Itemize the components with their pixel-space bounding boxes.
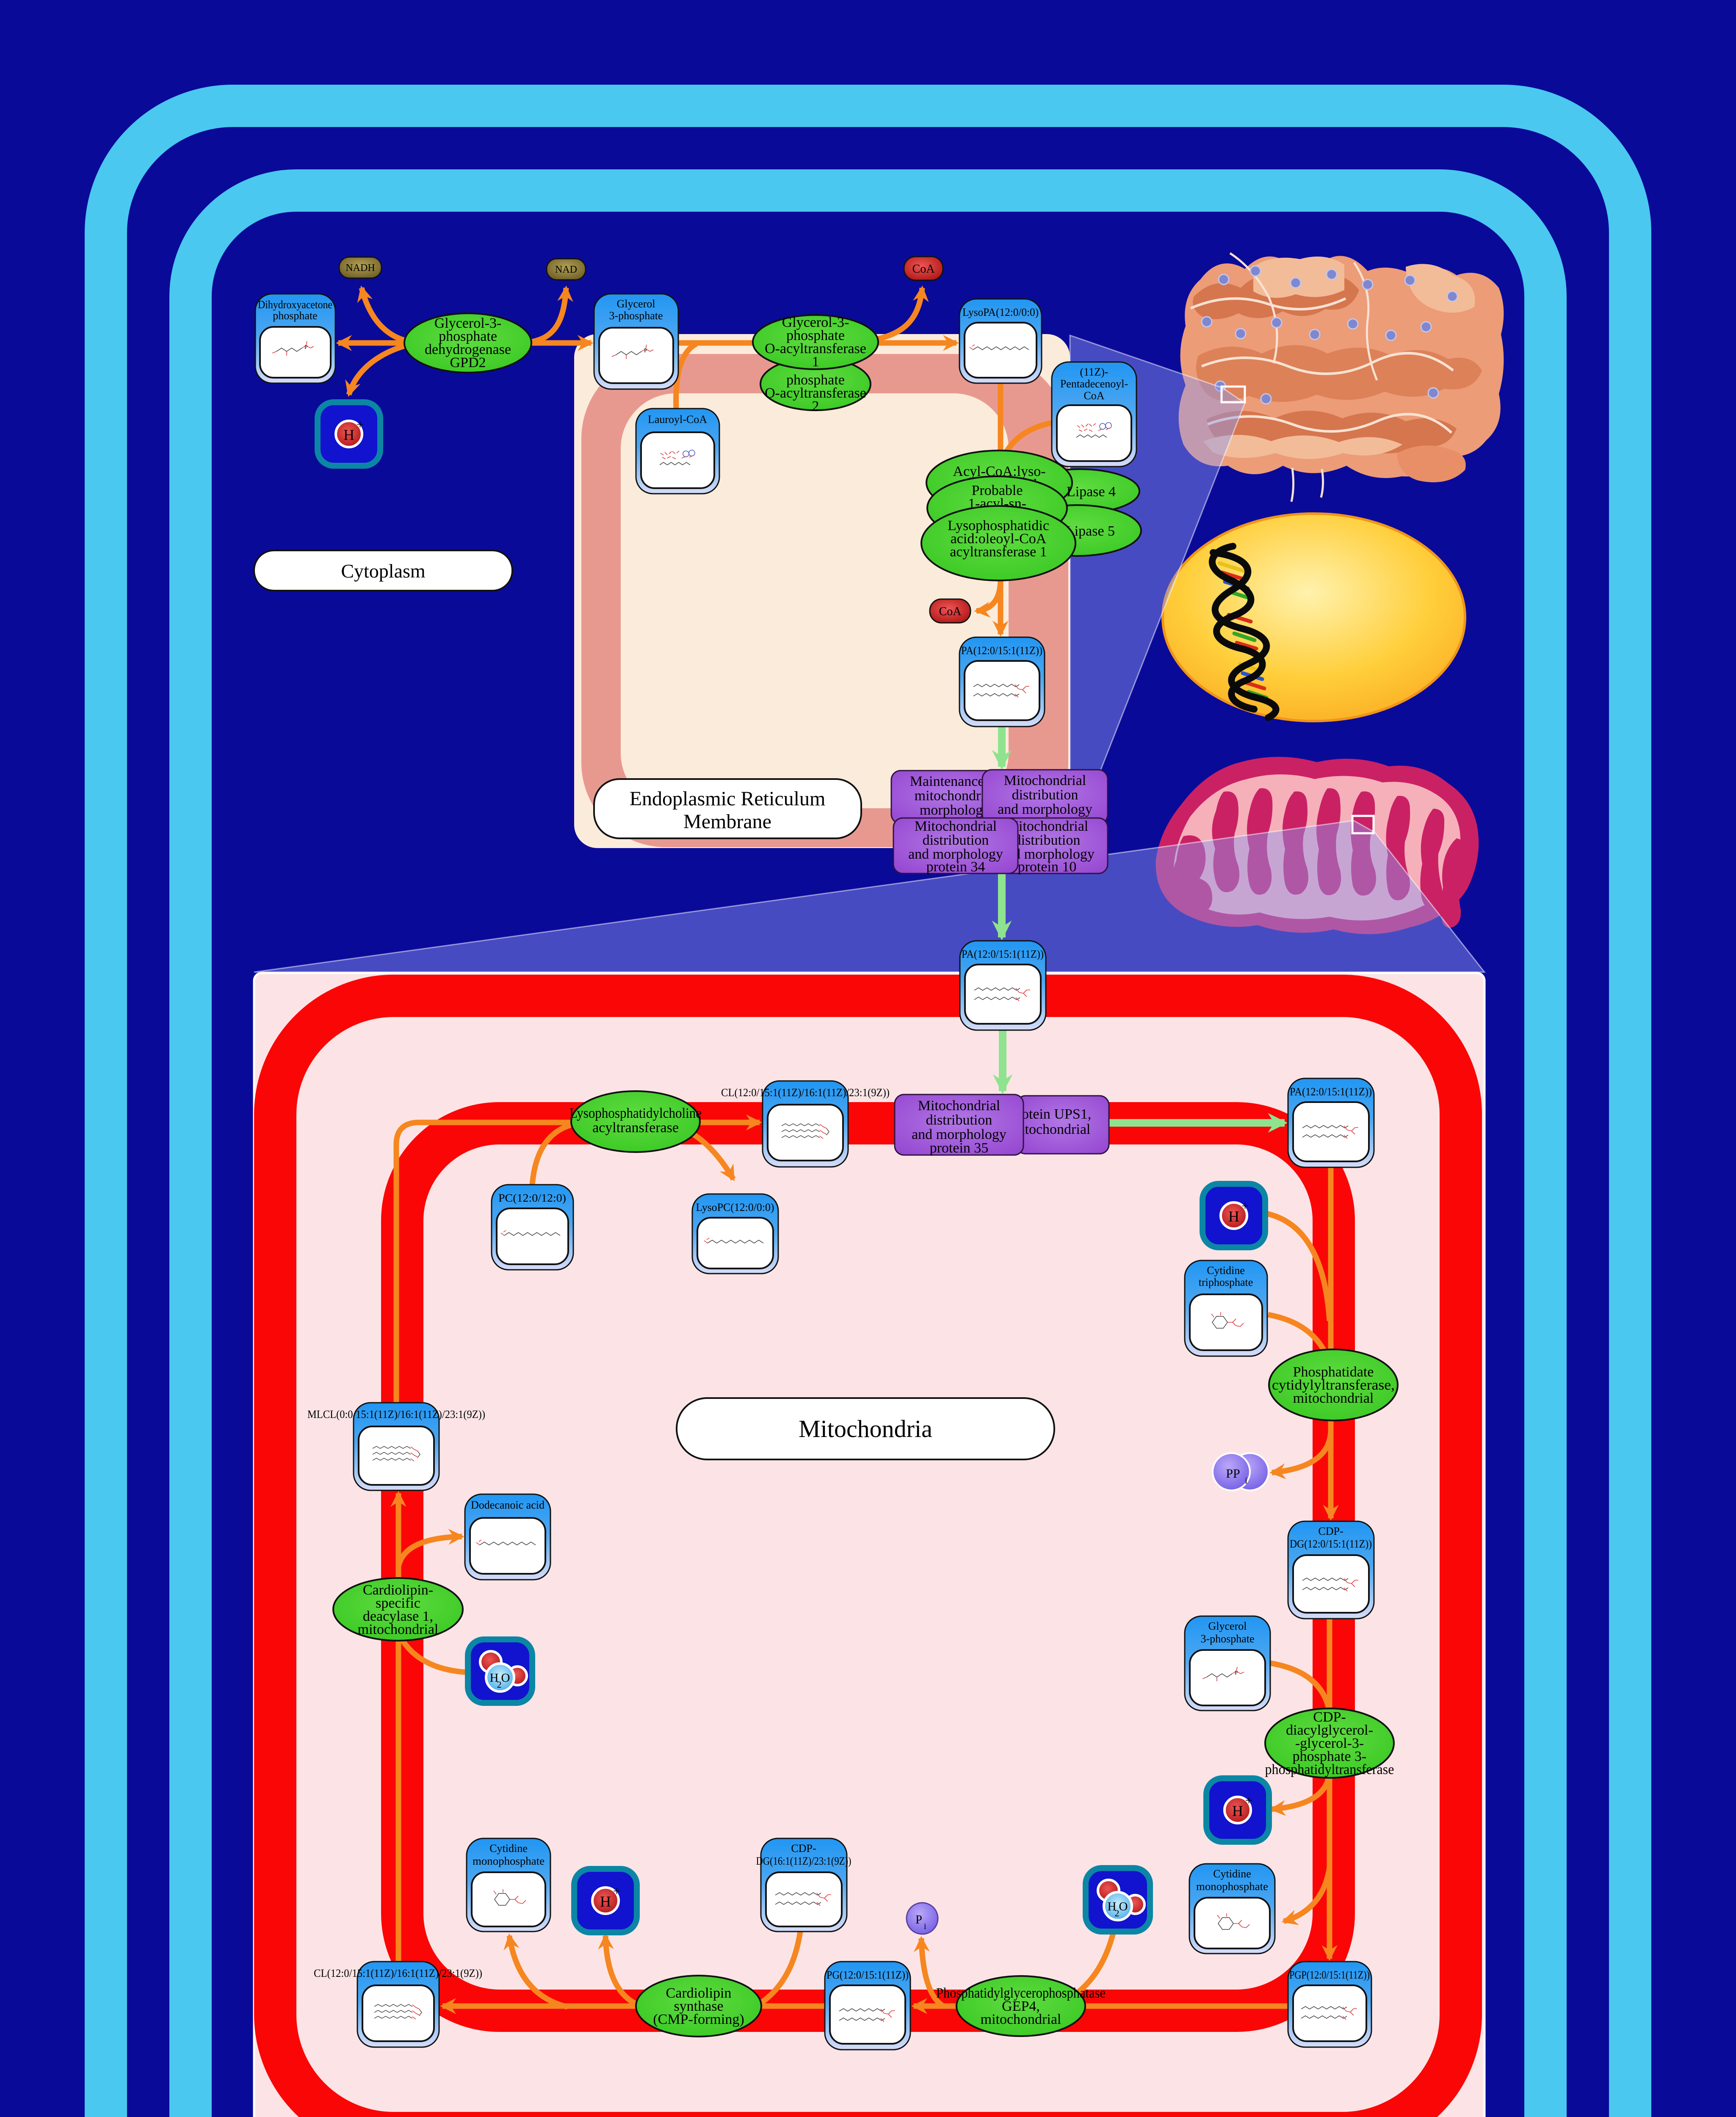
svg-text:monophosphate: monophosphate	[473, 1855, 545, 1867]
svg-text:i: i	[1245, 1475, 1247, 1486]
svg-text:Pentadecenoyl-: Pentadecenoyl-	[1060, 378, 1128, 390]
svg-text:Lysophosphatidylcholine: Lysophosphatidylcholine	[569, 1105, 702, 1121]
svg-text:Cytidine: Cytidine	[1213, 1868, 1251, 1880]
svg-text:protein 35: protein 35	[930, 1140, 989, 1156]
svg-text:and morphology: and morphology	[998, 801, 1092, 817]
svg-text:Mitochondria: Mitochondria	[799, 1415, 932, 1443]
svg-text:phosphatidyltransferase: phosphatidyltransferase	[1265, 1762, 1394, 1777]
svg-text:Glycerol: Glycerol	[1208, 1620, 1247, 1632]
svg-text:CDP-: CDP-	[1318, 1525, 1343, 1537]
svg-text:Mitochondrial: Mitochondrial	[918, 1098, 1001, 1114]
svg-text:distribution: distribution	[926, 1112, 992, 1128]
svg-text:protein 10: protein 10	[1018, 859, 1077, 875]
svg-text:phosphate: phosphate	[273, 310, 317, 322]
svg-text:PA(12:0/15:1(11Z)): PA(12:0/15:1(11Z))	[962, 948, 1044, 960]
svg-text:Endoplasmic Reticulum: Endoplasmic Reticulum	[630, 788, 826, 810]
svg-text:morphology: morphology	[920, 802, 990, 818]
svg-text:Mitochondrial: Mitochondrial	[915, 818, 997, 834]
svg-text:2: 2	[812, 398, 819, 414]
svg-text:mitochondrial: mitochondrial	[358, 1622, 439, 1637]
svg-text:PC(12:0/12:0): PC(12:0/12:0)	[498, 1192, 566, 1204]
svg-text:distribution: distribution	[1014, 832, 1081, 848]
svg-text:Membrane: Membrane	[683, 810, 771, 833]
svg-text:Dodecanoic acid: Dodecanoic acid	[471, 1499, 545, 1511]
svg-text:acyltransferase 1: acyltransferase 1	[950, 544, 1047, 560]
svg-text:Dihydroxyacetone: Dihydroxyacetone	[258, 298, 332, 311]
svg-text:MLCL(0:0/15:1(11Z)/16:1(11Z)/2: MLCL(0:0/15:1(11Z)/16:1(11Z)/23:1(9Z))	[307, 1408, 485, 1421]
svg-text:mitochondrial: mitochondrial	[981, 2012, 1062, 2027]
svg-text:CoA: CoA	[939, 605, 962, 618]
svg-text:3-phosphate: 3-phosphate	[609, 310, 663, 322]
svg-text:Lauroyl-CoA: Lauroyl-CoA	[648, 413, 707, 426]
svg-text:PA(12:0/15:1(11Z)): PA(12:0/15:1(11Z))	[1290, 1086, 1372, 1098]
svg-text:mitochondrial: mitochondrial	[1293, 1390, 1374, 1406]
svg-text:DG(16:1(11Z)/23:1(9Z)): DG(16:1(11Z)/23:1(9Z))	[756, 1855, 851, 1867]
svg-text:CDP-: CDP-	[791, 1842, 816, 1854]
svg-text:Lipase 4: Lipase 4	[1067, 484, 1116, 500]
svg-text:Cytidine: Cytidine	[489, 1842, 528, 1854]
svg-text:i: i	[924, 1922, 926, 1931]
svg-text:LysoPA(12:0/0:0): LysoPA(12:0/0:0)	[962, 306, 1039, 318]
svg-text:acyltransferase: acyltransferase	[592, 1120, 679, 1136]
svg-text:Mitochondrial: Mitochondrial	[1004, 773, 1086, 788]
svg-text:CL(12:0/15:1(11Z)/16:1(11Z)/23: CL(12:0/15:1(11Z)/16:1(11Z)/23:1(9Z))	[721, 1086, 890, 1099]
svg-text:Glycerol: Glycerol	[617, 298, 655, 310]
svg-text:DG(12:0/15:1(11Z)): DG(12:0/15:1(11Z))	[1290, 1538, 1372, 1550]
svg-text:Cytidine: Cytidine	[1207, 1264, 1245, 1277]
svg-text:CL(12:0/15:1(11Z)/16:1(11Z)/23: CL(12:0/15:1(11Z)/16:1(11Z)/23:1(9Z))	[314, 1967, 482, 1979]
svg-text:GPD2: GPD2	[450, 355, 486, 370]
svg-text:3-phosphate: 3-phosphate	[1200, 1633, 1254, 1645]
svg-text:(11Z)-: (11Z)-	[1080, 366, 1108, 378]
svg-text:LysoPC(12:0/0:0): LysoPC(12:0/0:0)	[696, 1201, 774, 1213]
svg-text:P: P	[915, 1913, 922, 1926]
svg-text:PGP(12:0/15:1(11Z)): PGP(12:0/15:1(11Z))	[1289, 1969, 1370, 1981]
svg-text:PG(12:0/15:1(11Z)): PG(12:0/15:1(11Z))	[827, 1969, 909, 1981]
svg-text:NAD: NAD	[555, 264, 577, 275]
svg-text:1: 1	[812, 354, 819, 370]
svg-text:triphosphate: triphosphate	[1199, 1276, 1253, 1288]
svg-text:CoA: CoA	[912, 263, 935, 276]
svg-text:distribution: distribution	[1012, 787, 1078, 803]
svg-text:NADH: NADH	[346, 263, 375, 274]
svg-text:PA(12:0/15:1(11Z)): PA(12:0/15:1(11Z))	[961, 644, 1042, 657]
svg-text:(CMP-forming): (CMP-forming)	[653, 2012, 744, 2027]
svg-text:PP: PP	[1226, 1467, 1240, 1481]
svg-text:protein 34: protein 34	[926, 859, 985, 875]
svg-text:monophosphate: monophosphate	[1196, 1880, 1268, 1893]
svg-text:Cytoplasm: Cytoplasm	[341, 560, 426, 582]
svg-text:CoA: CoA	[1084, 390, 1104, 402]
svg-text:distribution: distribution	[923, 832, 989, 848]
